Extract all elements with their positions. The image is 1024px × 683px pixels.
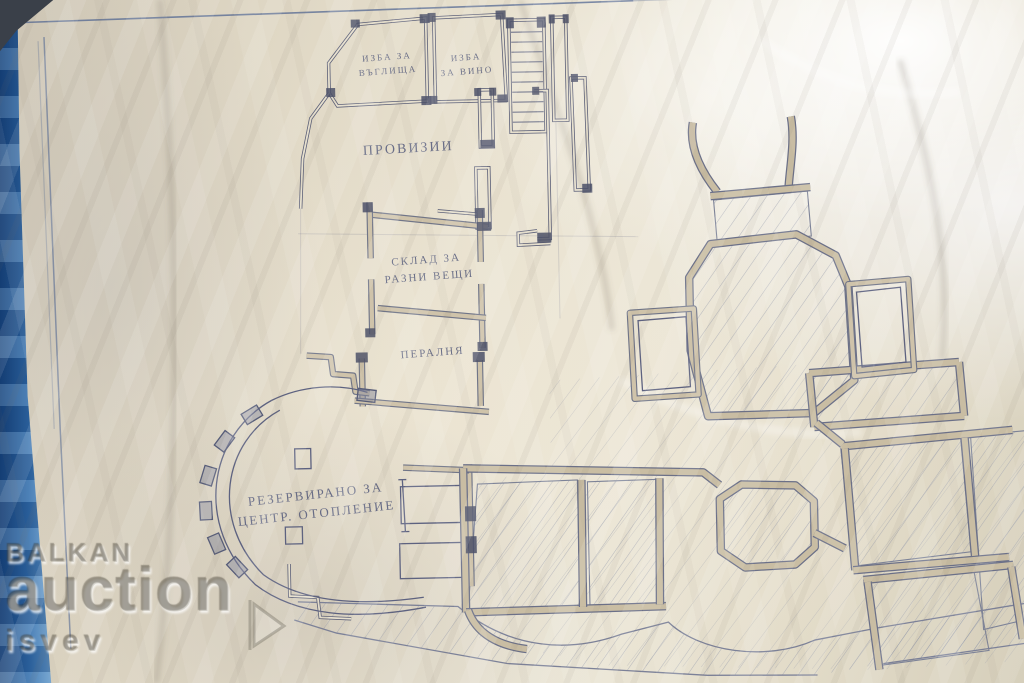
label-storage-line1: СКЛАД ЗА [391,252,461,269]
label-storage-line2: РАЗНИ ВЕЩИ [384,268,474,287]
auction-photo: ИЗБА ЗА ВЪГЛИЩА ИЗБА ЗА ВИНО ПРОВИЗИИ СК… [0,0,1024,683]
label-wine-cellar-line1: ИЗБА [450,51,481,63]
label-wine-cellar-line2: ЗА ВИНО [440,64,493,78]
label-provisions: ПРОВИЗИИ [363,139,455,159]
stair-shaft [511,32,544,123]
label-coal-cellar-line1: ИЗБА ЗА [362,50,412,64]
label-laundry: ПЕРАЛНЯ [400,345,465,362]
plan-labels: ИЗБА ЗА ВЪГЛИЩА ИЗБА ЗА ВИНО ПРОВИЗИИ СК… [227,48,503,529]
label-coal-cellar-line2: ВЪГЛИЩА [358,64,417,78]
floor-plan-drawing: ИЗБА ЗА ВЪГЛИЩА ИЗБА ЗА ВИНО ПРОВИЗИИ СК… [0,0,1024,683]
